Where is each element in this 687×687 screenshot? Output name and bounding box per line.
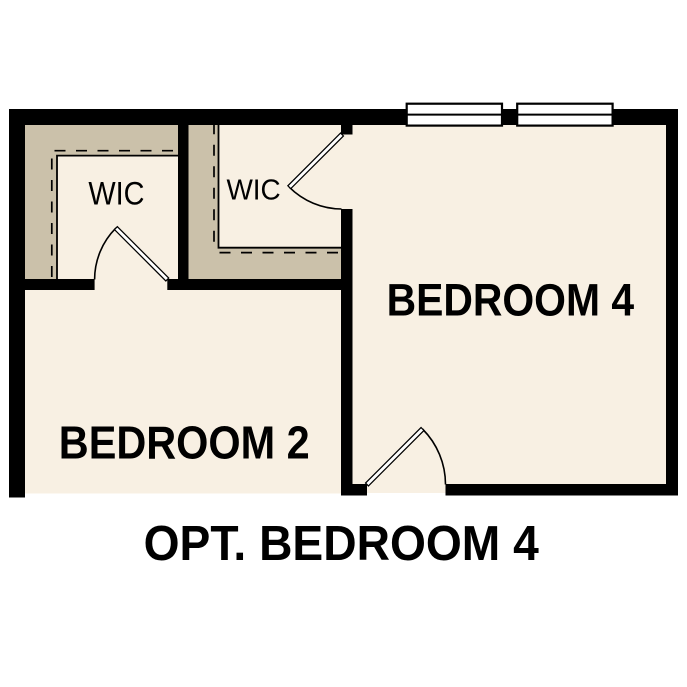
svg-text:WIC: WIC: [88, 175, 144, 211]
svg-text:BEDROOM 4: BEDROOM 4: [387, 275, 635, 326]
svg-text:BEDROOM 2: BEDROOM 2: [59, 417, 310, 469]
svg-text:OPT. BEDROOM 4: OPT. BEDROOM 4: [144, 517, 539, 571]
svg-text:WIC: WIC: [226, 174, 280, 206]
